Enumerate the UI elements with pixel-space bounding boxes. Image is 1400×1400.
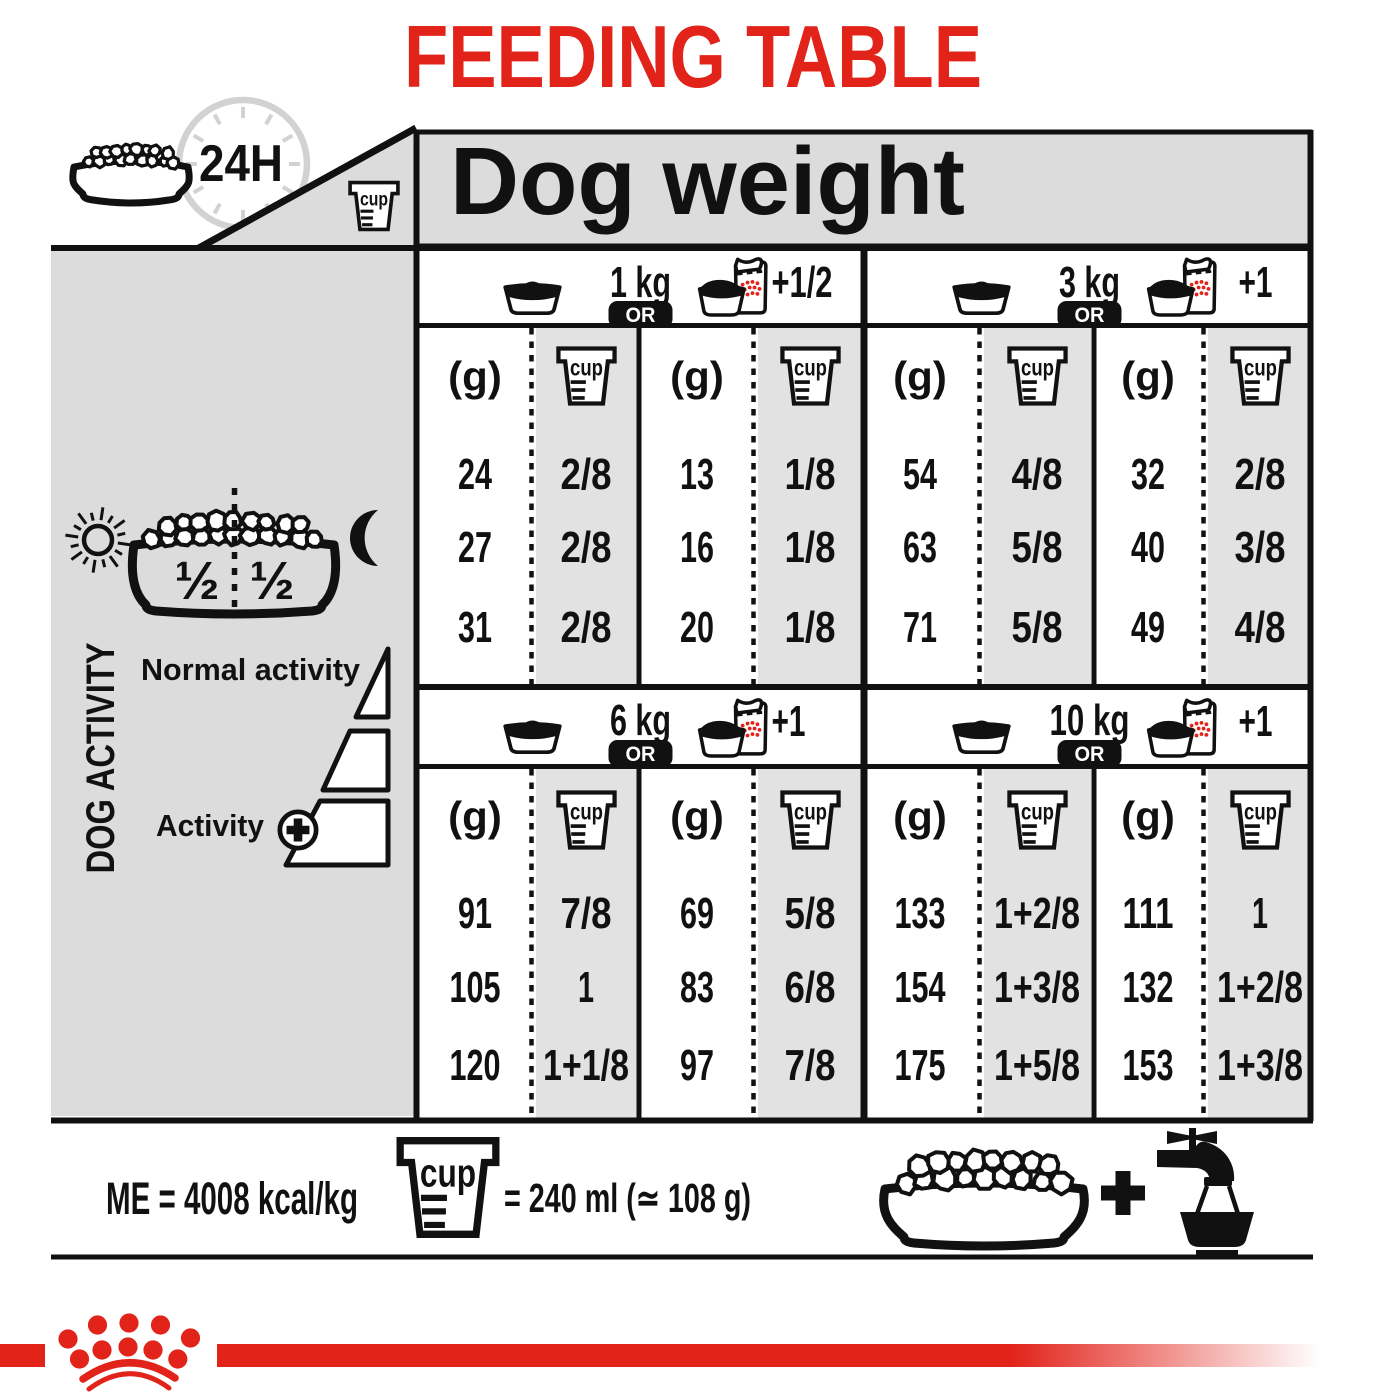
svg-text:132: 132 <box>1123 963 1174 1012</box>
svg-text:1/8: 1/8 <box>785 450 836 499</box>
svg-text:6/8: 6/8 <box>785 963 836 1012</box>
svg-text:3/8: 3/8 <box>1235 523 1286 572</box>
svg-text:+1: +1 <box>1239 697 1273 746</box>
svg-text:4/8: 4/8 <box>1012 450 1063 499</box>
svg-text:31: 31 <box>458 603 492 652</box>
svg-text:13: 13 <box>680 450 714 499</box>
svg-text:7/8: 7/8 <box>785 1041 836 1090</box>
svg-text:1: 1 <box>1252 889 1268 938</box>
svg-text:6 kg: 6 kg <box>610 696 671 745</box>
svg-text:(g): (g) <box>893 353 947 400</box>
svg-text:+1/2: +1/2 <box>772 258 833 307</box>
svg-text:½: ½ <box>249 551 294 611</box>
svg-text:Dog weight: Dog weight <box>450 128 965 235</box>
svg-text:40: 40 <box>1131 523 1165 572</box>
svg-text:DOG ACTIVITY: DOG ACTIVITY <box>79 642 123 873</box>
svg-text:7/8: 7/8 <box>561 889 612 938</box>
svg-text:½: ½ <box>174 551 219 611</box>
svg-text:+1: +1 <box>1239 258 1273 307</box>
svg-text:133: 133 <box>895 889 946 938</box>
svg-text:5/8: 5/8 <box>785 889 836 938</box>
svg-text:24: 24 <box>458 450 492 499</box>
svg-text:120: 120 <box>450 1041 501 1090</box>
svg-text:27: 27 <box>458 523 492 572</box>
svg-text:63: 63 <box>903 523 937 572</box>
svg-text:5/8: 5/8 <box>1012 603 1063 652</box>
svg-text:1+3/8: 1+3/8 <box>994 963 1080 1012</box>
svg-text:(g): (g) <box>1121 353 1175 400</box>
svg-text:20: 20 <box>680 603 714 652</box>
svg-text:83: 83 <box>680 963 714 1012</box>
svg-text:1+3/8: 1+3/8 <box>1217 1041 1303 1090</box>
svg-text:97: 97 <box>680 1041 714 1090</box>
svg-text:2/8: 2/8 <box>561 603 612 652</box>
svg-text:1 kg: 1 kg <box>610 258 671 307</box>
svg-text:OR: OR <box>1075 743 1105 766</box>
svg-text:16: 16 <box>680 523 714 572</box>
svg-text:FEEDING TABLE: FEEDING TABLE <box>404 7 982 106</box>
svg-text:3 kg: 3 kg <box>1059 258 1120 307</box>
svg-text:(g): (g) <box>448 793 502 840</box>
svg-text:2/8: 2/8 <box>561 450 612 499</box>
svg-text:111: 111 <box>1123 889 1174 938</box>
svg-text:ME = 4008 kcal/kg: ME = 4008 kcal/kg <box>106 1173 358 1224</box>
svg-text:175: 175 <box>895 1041 946 1090</box>
svg-text:49: 49 <box>1131 603 1165 652</box>
svg-text:1+1/8: 1+1/8 <box>543 1041 629 1090</box>
svg-text:OR: OR <box>626 743 656 766</box>
svg-text:54: 54 <box>903 450 937 499</box>
svg-text:24H: 24H <box>199 135 283 193</box>
svg-text:10 kg: 10 kg <box>1050 696 1130 745</box>
svg-text:1+2/8: 1+2/8 <box>994 889 1080 938</box>
svg-text:91: 91 <box>458 889 492 938</box>
svg-text:1+2/8: 1+2/8 <box>1217 963 1303 1012</box>
svg-text:Activity: Activity <box>156 808 265 843</box>
svg-text:1+5/8: 1+5/8 <box>994 1041 1080 1090</box>
svg-text:1/8: 1/8 <box>785 603 836 652</box>
svg-text:(g): (g) <box>1121 793 1175 840</box>
svg-text:154: 154 <box>895 963 946 1012</box>
svg-text:+1: +1 <box>772 697 806 746</box>
svg-text:(g): (g) <box>670 793 724 840</box>
svg-text:105: 105 <box>450 963 501 1012</box>
svg-text:= 240 ml (≃ 108 g): = 240 ml (≃ 108 g) <box>504 1175 751 1221</box>
svg-text:5/8: 5/8 <box>1012 523 1063 572</box>
svg-text:2/8: 2/8 <box>1235 450 1286 499</box>
svg-text:4/8: 4/8 <box>1235 603 1286 652</box>
svg-text:(g): (g) <box>893 793 947 840</box>
svg-text:69: 69 <box>680 889 714 938</box>
svg-text:1/8: 1/8 <box>785 523 836 572</box>
svg-text:(g): (g) <box>448 353 502 400</box>
svg-text:1: 1 <box>578 963 594 1012</box>
svg-text:(g): (g) <box>670 353 724 400</box>
svg-text:153: 153 <box>1123 1041 1174 1090</box>
svg-text:Normal activity: Normal activity <box>141 652 361 687</box>
svg-text:71: 71 <box>903 603 937 652</box>
svg-text:32: 32 <box>1131 450 1165 499</box>
svg-text:2/8: 2/8 <box>561 523 612 572</box>
